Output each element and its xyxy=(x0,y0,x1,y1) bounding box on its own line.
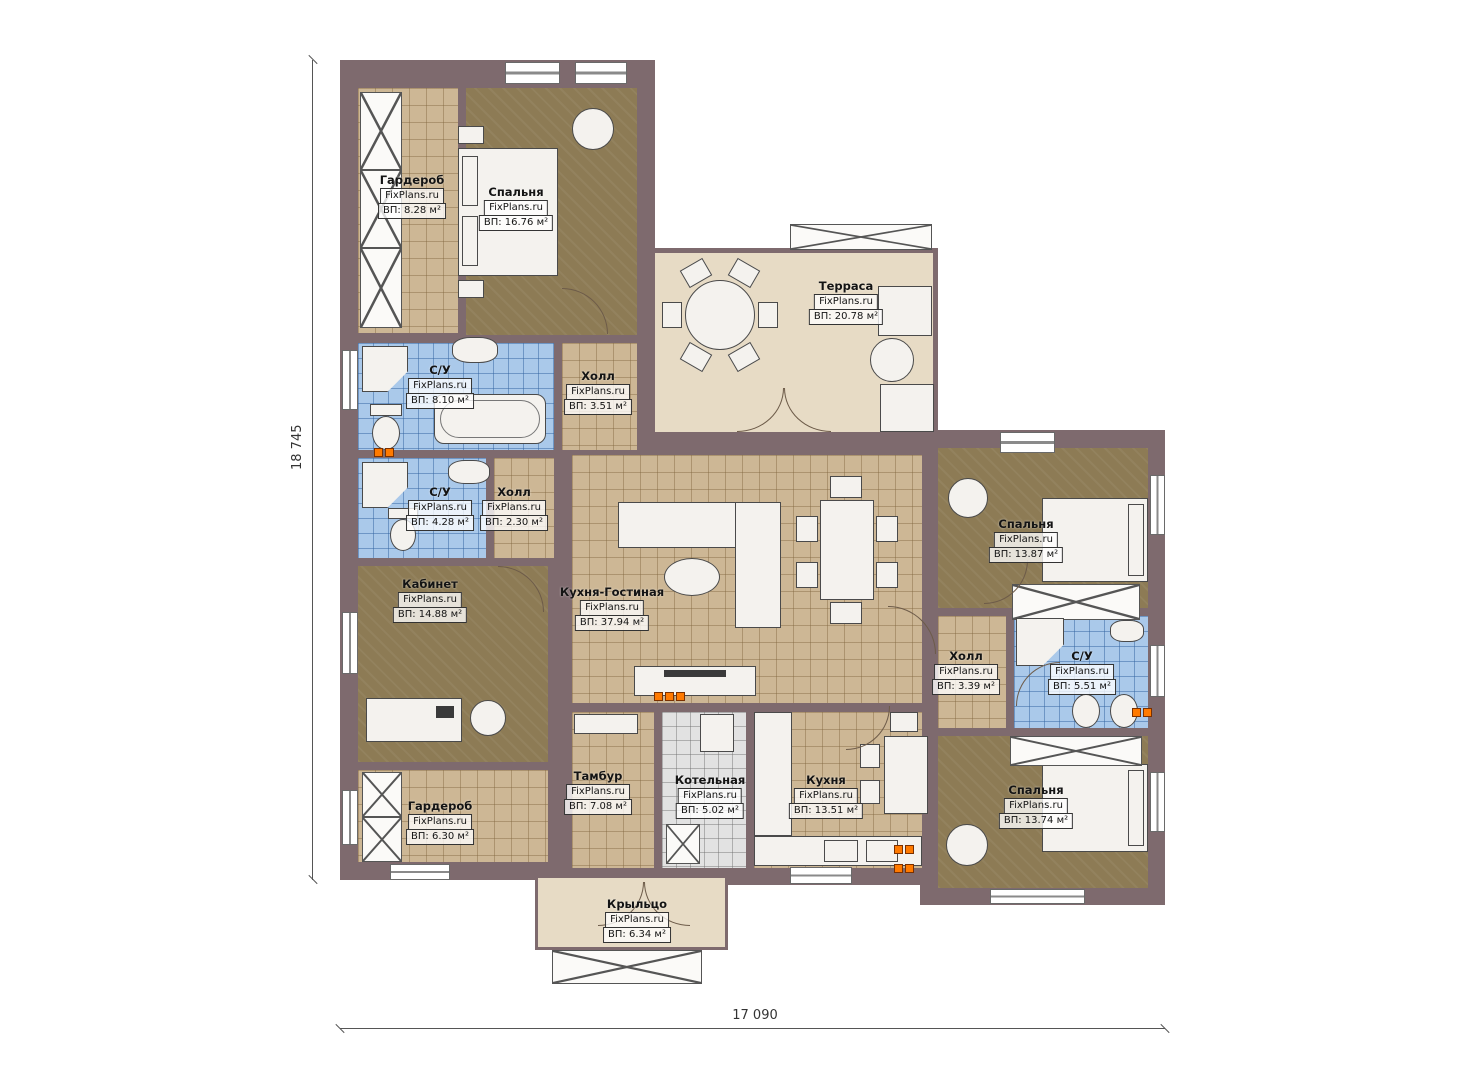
room-name: Гардероб xyxy=(380,173,445,187)
dining-table xyxy=(820,500,874,600)
coffee-table xyxy=(664,558,720,596)
watermark: FixPlans.ru xyxy=(994,532,1058,548)
room-area: ВП: 5.51 м² xyxy=(1048,679,1116,695)
room-label-hall-1: Холл FixPlans.ru ВП: 3.51 м² xyxy=(564,369,632,415)
room-label-bathroom-3: С/У FixPlans.ru ВП: 5.51 м² xyxy=(1048,649,1116,695)
watermark: FixPlans.ru xyxy=(814,294,878,310)
chair xyxy=(758,302,778,328)
watermark: FixPlans.ru xyxy=(1050,664,1114,680)
room-label-wardrobe-2: Гардероб FixPlans.ru ВП: 6.30 м² xyxy=(406,799,474,845)
room-name: Кухня xyxy=(806,773,846,787)
room-area: ВП: 6.34 м² xyxy=(603,927,671,943)
room-label-kitchen-living: Кухня-Гостиная FixPlans.ru ВП: 37.94 м² xyxy=(560,585,664,631)
dimension-line-left xyxy=(312,60,313,880)
tv xyxy=(664,670,726,677)
room-label-wardrobe-1: Гардероб FixPlans.ru ВП: 8.28 м² xyxy=(378,173,446,219)
room-area: ВП: 3.51 м² xyxy=(564,399,632,415)
room-label-bedroom-2: Спальня FixPlans.ru ВП: 13.87 м² xyxy=(989,517,1063,563)
boiler-unit xyxy=(666,824,700,864)
watermark: FixPlans.ru xyxy=(794,788,858,804)
pillow xyxy=(462,216,478,266)
window xyxy=(990,889,1085,904)
room-name: Крыльцо xyxy=(607,897,667,911)
room-label-porch: Крыльцо FixPlans.ru ВП: 6.34 м² xyxy=(603,897,671,943)
watermark: FixPlans.ru xyxy=(580,600,644,616)
chair xyxy=(860,744,880,768)
pillow xyxy=(1128,504,1144,576)
room-name: Спальня xyxy=(488,185,543,199)
room-name: С/У xyxy=(1071,649,1093,663)
radiator-icon xyxy=(374,448,394,457)
dimension-line-bottom xyxy=(340,1028,1165,1029)
room-name: Холл xyxy=(949,649,983,663)
room-name: Терраса xyxy=(819,279,873,293)
armchair xyxy=(946,824,988,866)
watermark: FixPlans.ru xyxy=(566,784,630,800)
kitchen-counter xyxy=(754,712,792,836)
room-area: ВП: 8.28 м² xyxy=(378,203,446,219)
room-label-bedroom-1: Спальня FixPlans.ru ВП: 16.76 м² xyxy=(479,185,553,231)
room-label-hall-3: Холл FixPlans.ru ВП: 3.39 м² xyxy=(932,649,1000,695)
room-area: ВП: 37.94 м² xyxy=(575,615,649,631)
radiator-icon xyxy=(654,692,685,701)
pillow xyxy=(462,156,478,206)
chair xyxy=(876,562,898,588)
window xyxy=(342,612,358,674)
terrace-armchair xyxy=(880,384,934,432)
room-name: С/У xyxy=(429,485,451,499)
room-area: ВП: 14.88 м² xyxy=(393,607,467,623)
window xyxy=(1150,772,1165,832)
room-label-bedroom-3: Спальня FixPlans.ru ВП: 13.74 м² xyxy=(999,783,1073,829)
room-label-boiler: Котельная FixPlans.ru ВП: 5.02 м² xyxy=(675,773,746,819)
room-name: Тамбур xyxy=(574,769,623,783)
chair xyxy=(830,476,862,498)
room-label-office: Кабинет FixPlans.ru ВП: 14.88 м² xyxy=(393,577,467,623)
wardrobe-cabinet xyxy=(1010,736,1142,766)
room-area: ВП: 20.78 м² xyxy=(809,309,883,325)
wardrobe-cabinet xyxy=(360,248,402,328)
room-label-bathroom-2: С/У FixPlans.ru ВП: 4.28 м² xyxy=(406,485,474,531)
window xyxy=(342,350,358,410)
nightstand xyxy=(458,126,484,144)
boiler-unit xyxy=(700,714,734,752)
armchair xyxy=(572,108,614,150)
watermark: FixPlans.ru xyxy=(566,384,630,400)
room-area: ВП: 16.76 м² xyxy=(479,215,553,231)
cabinet xyxy=(574,714,638,734)
watermark: FixPlans.ru xyxy=(398,592,462,608)
room-area: ВП: 5.02 м² xyxy=(676,803,744,819)
room-name: Гардероб xyxy=(408,799,473,813)
wardrobe-cabinet xyxy=(362,817,402,862)
room-area: ВП: 2.30 м² xyxy=(480,515,548,531)
toilet xyxy=(372,416,400,450)
room-name: Кухня-Гостиная xyxy=(560,585,664,599)
room-area: ВП: 8.10 м² xyxy=(406,393,474,409)
dimension-left-label: 18 745 xyxy=(290,425,305,471)
pillow xyxy=(1128,770,1144,846)
porch-steps xyxy=(552,950,702,984)
sink xyxy=(452,337,498,363)
terrace-steps xyxy=(790,224,932,250)
radiator-icon xyxy=(894,864,914,873)
nightstand xyxy=(458,280,484,298)
desk xyxy=(366,698,462,742)
room-name: Котельная xyxy=(675,773,746,787)
dimension-tick xyxy=(308,55,317,64)
wardrobe-cabinet xyxy=(1012,584,1140,620)
room-area: ВП: 6.30 м² xyxy=(406,829,474,845)
chair xyxy=(830,602,862,624)
room-label-terrace: Терраса FixPlans.ru ВП: 20.78 м² xyxy=(809,279,883,325)
window xyxy=(1000,432,1055,453)
window xyxy=(1150,475,1165,535)
window xyxy=(790,867,852,884)
watermark: FixPlans.ru xyxy=(678,788,742,804)
watermark: FixPlans.ru xyxy=(1004,798,1068,814)
armchair xyxy=(948,478,988,518)
watermark: FixPlans.ru xyxy=(380,188,444,204)
window xyxy=(575,62,627,84)
dimension-tick xyxy=(308,875,317,884)
watermark: FixPlans.ru xyxy=(408,814,472,830)
wardrobe-cabinet xyxy=(362,772,402,817)
room-label-hall-2: Холл FixPlans.ru ВП: 2.30 м² xyxy=(480,485,548,531)
terrace-armchair xyxy=(878,286,932,336)
room-name: Спальня xyxy=(1008,783,1063,797)
kitchen-table xyxy=(884,736,928,814)
chair xyxy=(876,516,898,542)
room-label-vestibule: Тамбур FixPlans.ru ВП: 7.08 м² xyxy=(564,769,632,815)
watermark: FixPlans.ru xyxy=(484,200,548,216)
room-name: Холл xyxy=(497,485,531,499)
room-name: С/У xyxy=(429,363,451,377)
wardrobe-cabinet xyxy=(360,92,402,170)
toilet-tank xyxy=(370,404,402,416)
watermark: FixPlans.ru xyxy=(482,500,546,516)
round-table xyxy=(685,280,755,350)
room-name: Спальня xyxy=(998,517,1053,531)
watermark: FixPlans.ru xyxy=(934,664,998,680)
laptop xyxy=(436,706,454,718)
room-label-bathroom-1: С/У FixPlans.ru ВП: 8.10 м² xyxy=(406,363,474,409)
floor-plan: Гардероб FixPlans.ru ВП: 8.28 м² Спальня… xyxy=(0,0,1474,1080)
chair xyxy=(796,562,818,588)
window xyxy=(1150,645,1165,697)
window xyxy=(505,62,560,84)
dimension-bottom-label: 17 090 xyxy=(715,1008,795,1023)
room-label-kitchen: Кухня FixPlans.ru ВП: 13.51 м² xyxy=(789,773,863,819)
office-chair xyxy=(470,700,506,736)
sink xyxy=(1110,620,1144,642)
sofa xyxy=(735,502,781,628)
kitchen-sink xyxy=(824,840,858,862)
watermark: FixPlans.ru xyxy=(408,500,472,516)
room-area: ВП: 4.28 м² xyxy=(406,515,474,531)
room-area: ВП: 3.39 м² xyxy=(932,679,1000,695)
watermark: FixPlans.ru xyxy=(605,912,669,928)
side-table xyxy=(870,338,914,382)
room-area: ВП: 13.74 м² xyxy=(999,813,1073,829)
room-name: Холл xyxy=(581,369,615,383)
window xyxy=(342,790,358,845)
radiator-icon xyxy=(1132,708,1152,717)
toilet xyxy=(1072,694,1100,728)
window xyxy=(390,864,450,880)
radiator-icon xyxy=(894,845,914,854)
chair xyxy=(890,712,918,732)
room-area: ВП: 13.51 м² xyxy=(789,803,863,819)
sink xyxy=(448,460,490,484)
room-area: ВП: 13.87 м² xyxy=(989,547,1063,563)
watermark: FixPlans.ru xyxy=(408,378,472,394)
chair xyxy=(796,516,818,542)
room-name: Кабинет xyxy=(402,577,458,591)
chair xyxy=(662,302,682,328)
room-area: ВП: 7.08 м² xyxy=(564,799,632,815)
